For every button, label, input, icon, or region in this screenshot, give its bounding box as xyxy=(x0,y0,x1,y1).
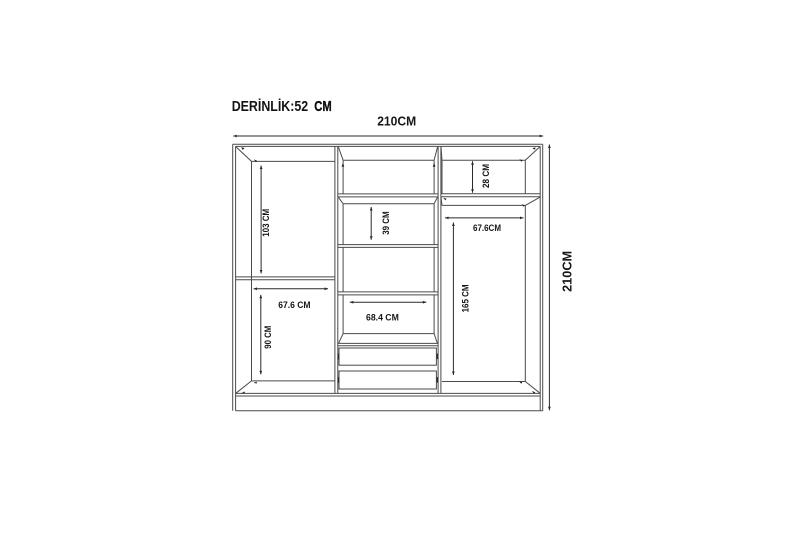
svg-text:90 CM: 90 CM xyxy=(263,326,273,349)
svg-text:210CM: 210CM xyxy=(559,251,574,292)
svg-text:67.6CM: 67.6CM xyxy=(473,223,501,233)
svg-text:68.4 CM: 68.4 CM xyxy=(366,312,399,322)
svg-text:28 CM: 28 CM xyxy=(481,164,491,188)
svg-text:67.6 CM: 67.6 CM xyxy=(278,300,310,310)
svg-text:210CM: 210CM xyxy=(377,113,416,128)
svg-text:103 CM: 103 CM xyxy=(261,209,271,237)
svg-text:165 CM: 165 CM xyxy=(460,284,470,312)
svg-text:39 CM: 39 CM xyxy=(381,211,391,235)
svg-text:CM: CM xyxy=(314,98,331,115)
svg-text:DERİNLİK:52: DERİNLİK:52 xyxy=(232,98,309,115)
